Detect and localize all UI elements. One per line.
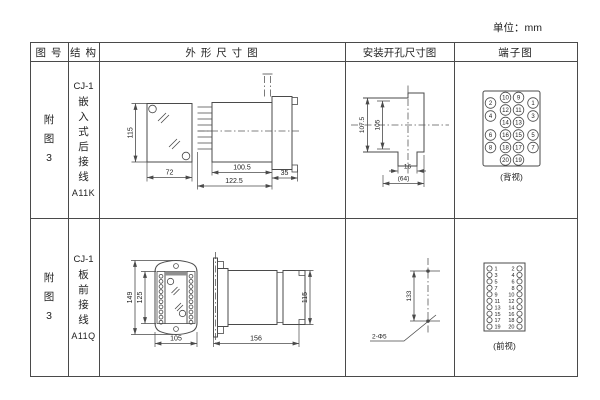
code-label-row2: A11Q	[71, 331, 95, 341]
header-cutout: 安装开孔尺寸图	[345, 45, 454, 60]
front-view-row1: 115 72	[127, 104, 192, 182]
terminal-screws-left	[159, 274, 163, 324]
dim-side-depth-row2: 156	[250, 336, 262, 343]
dim-side-height-row2: 115	[302, 292, 309, 303]
dim-side-body-row1: 100.5	[233, 165, 251, 172]
dim-cutout-notch-row1: 16	[404, 164, 412, 171]
terminal-number: 20	[508, 325, 514, 331]
fig-no-row2: 附图3	[43, 269, 54, 326]
terminal-number: 3	[495, 273, 498, 279]
terminal-pins	[198, 107, 213, 149]
terminal-number: 4	[511, 273, 514, 279]
terminal-number: 1	[531, 101, 535, 107]
terminal-number: 19	[495, 325, 501, 331]
dim-side-total-row1: 122.5	[225, 178, 243, 185]
dim-cutout-width-row1: (64)	[398, 176, 410, 183]
code-label-row1: A11K	[72, 188, 95, 198]
terminal-number: 2	[489, 101, 493, 107]
dim-front-width-row2: 105	[170, 336, 182, 343]
terminal-number: 14	[502, 121, 509, 127]
terminal-number: 10	[508, 292, 514, 298]
dim-cutout-outer-row1: 107.5	[359, 116, 366, 133]
dim-side-flange-row1: 35	[281, 170, 289, 177]
terminal-number: 18	[502, 146, 509, 152]
dim-front-width-row1: 72	[166, 170, 174, 177]
dim-front-outer-row2: 149	[127, 292, 134, 304]
terminal-number: 13	[495, 305, 501, 311]
terminal-number: 12	[508, 299, 514, 305]
terminal-number: 12	[502, 108, 509, 114]
drawing-sheet: 单位：mm 图 号 结 构 外 形 尺 寸 图 安装开孔尺寸图 端子图 附图3 …	[0, 0, 600, 400]
terminal-number: 7	[495, 286, 498, 292]
terminal-caption-rear: (背视)	[500, 172, 523, 182]
terminal-number: 3	[531, 114, 535, 120]
terminal-number: 1	[495, 267, 498, 273]
table-border-right	[577, 42, 578, 376]
mounting-hole-bottom	[410, 319, 440, 323]
structure-cell-row2: CJ-1 板前接线 A11Q	[68, 218, 99, 376]
terminal-number: 16	[508, 312, 514, 318]
model-label-row2: CJ-1	[73, 254, 93, 265]
terminal-number: 17	[495, 318, 501, 324]
terminal-number: 17	[515, 146, 522, 152]
terminal-diagram-front: 1 3 5 7 9 11 13 15 17 19 2 4 6 8 10 12 1…	[454, 218, 577, 376]
side-view-row2: 156 115	[214, 252, 314, 347]
fig-no-row1: 附图3	[43, 111, 54, 168]
hatch-marks	[158, 113, 180, 149]
terminal-number: 9	[517, 96, 521, 102]
terminal-number: 5	[531, 133, 535, 139]
terminal-grid-front: 1 3 5 7 9 11 13 15 17 19 2 4 6 8 10 12 1…	[487, 266, 522, 331]
terminal-number: 5	[495, 280, 498, 286]
terminal-number: 9	[495, 292, 498, 298]
hole-callout-label: 2-Φ5	[372, 334, 387, 341]
header-fig-no: 图 号	[30, 45, 68, 60]
terminal-number: 6	[511, 280, 514, 286]
structure-cell-row1: CJ-1 嵌入式后接线 A11K	[68, 61, 99, 218]
top-post-phantom	[263, 74, 273, 97]
header-terminal: 端子图	[454, 45, 577, 60]
terminal-diagram-rear: 10 12 14 16 18 20 9 11 13 15 17 19 2 4 6…	[454, 61, 577, 218]
terminal-number: 8	[489, 146, 493, 152]
hatch-marks	[172, 287, 184, 311]
terminal-number: 16	[502, 133, 509, 139]
front-view-row2: 149 125 105	[127, 261, 197, 348]
terminal-number: 4	[489, 114, 493, 120]
terminal-number: 19	[515, 158, 522, 164]
outline-drawing-row1: 115 72 100.5 122.5 35	[99, 61, 345, 218]
terminal-number: 15	[515, 133, 522, 139]
unit-label: 单位：mm	[493, 20, 542, 35]
cutout-profile	[363, 93, 424, 166]
mounting-label-row1: 嵌入式后接线	[78, 95, 89, 185]
terminal-number: 6	[489, 133, 493, 139]
terminal-number: 8	[511, 286, 514, 292]
model-label-row1: CJ-1	[73, 81, 93, 92]
terminal-number: 11	[515, 108, 522, 114]
dim-cutout-inner-row1: 105	[375, 119, 382, 130]
terminal-number: 14	[508, 305, 514, 311]
terminal-number: 10	[502, 96, 509, 102]
fig-no-cell-row1: 附图3	[30, 61, 68, 218]
terminal-number: 11	[495, 299, 501, 305]
terminal-grid-rear: 10 12 14 16 18 20 9 11 13 15 17 19 2 4 6…	[485, 92, 538, 165]
dim-front-height-row1: 115	[127, 127, 134, 138]
terminal-number: 7	[531, 146, 535, 152]
dim-hole-spacing-row2: 133	[406, 290, 413, 301]
terminal-number: 2	[511, 267, 514, 273]
table-border-top	[30, 42, 578, 43]
header-structure: 结 构	[68, 45, 99, 60]
fig-no-cell-row2: 附图3	[30, 218, 68, 376]
terminal-screws-right	[189, 274, 193, 324]
mounting-label-row2: 板前接线	[78, 268, 89, 328]
header-outline: 外 形 尺 寸 图	[99, 45, 345, 60]
terminal-number: 20	[502, 158, 509, 164]
terminal-number: 15	[495, 312, 501, 318]
outline-drawing-row2: 149 125 105 156 115	[99, 218, 345, 376]
table-border-bottom	[30, 376, 578, 377]
side-view-row1: 100.5 122.5 35	[198, 74, 302, 190]
terminal-number: 13	[515, 121, 522, 127]
cutout-drawing-row1: 107.5 105 16 (64)	[345, 61, 454, 218]
cutout-drawing-row2: 133 2-Φ5	[345, 218, 454, 376]
mounting-hole-top	[410, 269, 440, 273]
terminal-number: 18	[508, 318, 514, 324]
terminal-caption-front: (前视)	[493, 341, 516, 351]
dim-front-inner-row2: 125	[137, 292, 144, 304]
